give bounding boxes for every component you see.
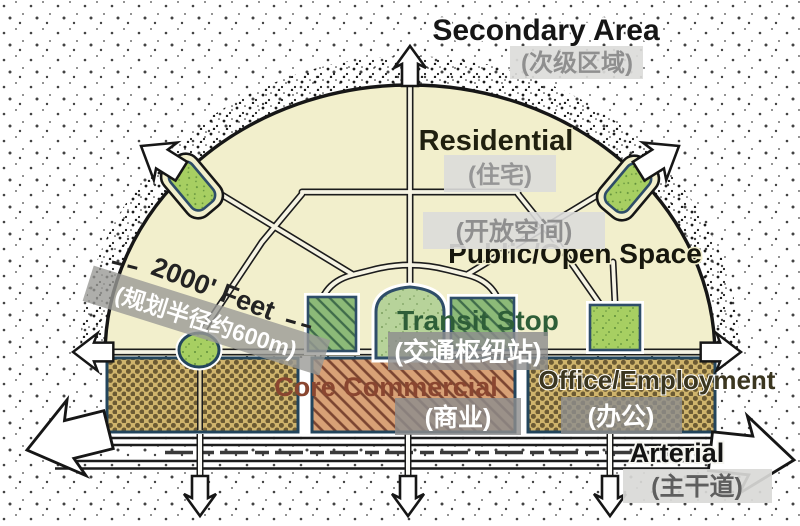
overlay-label-secondary-area: (次级区域) (521, 49, 633, 77)
label-residential: Residential (419, 125, 574, 157)
label-core-commercial: Core Commercial (274, 372, 498, 402)
tod-diagram: Secondary Area Residential Public/Open S… (0, 0, 800, 526)
label-transit-stop: Transit Stop (397, 305, 559, 336)
label-secondary-area: Secondary Area (432, 14, 660, 47)
tod-diagram-canvas: Secondary Area Residential Public/Open S… (0, 0, 800, 526)
label-arterial: Arterial (630, 438, 725, 468)
overlay-label-residential: (住宅) (468, 161, 532, 189)
overlay-label-arterial: (主干道) (651, 472, 743, 501)
overlay-label-transit-stop: (交通枢纽站) (394, 337, 541, 367)
overlay-label-open-space: (开放空间) (456, 217, 573, 246)
park-square-right (590, 305, 640, 350)
overlay-label-commercial: (商业) (425, 403, 492, 432)
label-office-employment: Office/Employment (539, 365, 776, 395)
overlay-label-office: (办公) (588, 403, 655, 431)
